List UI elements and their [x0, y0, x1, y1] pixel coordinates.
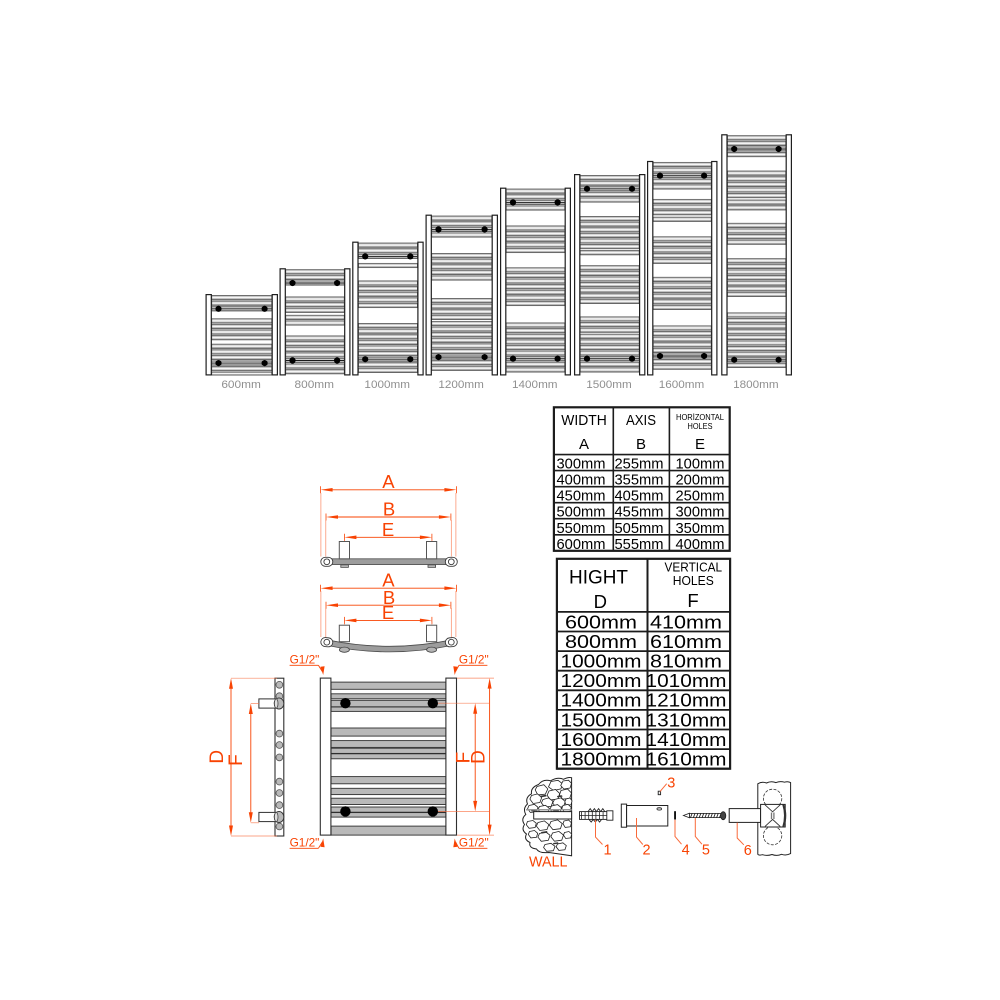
svg-text:B: B [636, 436, 646, 453]
svg-text:G1/2": G1/2" [459, 836, 489, 850]
svg-text:1200mm: 1200mm [438, 379, 484, 391]
svg-text:HORİZONTAL: HORİZONTAL [676, 413, 725, 422]
svg-text:350mm: 350mm [676, 520, 725, 537]
svg-text:600mm: 600mm [221, 379, 261, 391]
svg-text:250mm: 250mm [676, 488, 725, 505]
svg-text:1010mm: 1010mm [646, 671, 727, 691]
svg-text:800mm: 800mm [295, 379, 335, 391]
svg-text:100mm: 100mm [676, 456, 725, 473]
svg-text:800mm: 800mm [565, 632, 637, 652]
svg-text:WALL: WALL [529, 854, 568, 871]
svg-text:355mm: 355mm [615, 472, 664, 489]
svg-text:1610mm: 1610mm [646, 750, 727, 770]
svg-text:D: D [594, 591, 607, 612]
svg-text:1200mm: 1200mm [561, 671, 642, 691]
svg-text:F: F [226, 754, 247, 766]
svg-text:1400mm: 1400mm [561, 691, 642, 711]
svg-text:600mm: 600mm [557, 536, 606, 553]
svg-text:450mm: 450mm [557, 488, 606, 505]
svg-text:410mm: 410mm [650, 612, 722, 632]
svg-text:E: E [695, 436, 705, 453]
svg-text:AXIS: AXIS [626, 412, 656, 429]
svg-text:1800mm: 1800mm [733, 379, 779, 391]
svg-text:300mm: 300mm [676, 504, 725, 521]
svg-text:400mm: 400mm [557, 472, 606, 489]
svg-text:3: 3 [667, 776, 675, 792]
svg-text:1500mm: 1500mm [586, 379, 632, 391]
svg-text:A: A [579, 436, 589, 453]
svg-text:1410mm: 1410mm [646, 730, 727, 750]
svg-text:1310mm: 1310mm [646, 710, 727, 730]
svg-text:255mm: 255mm [615, 456, 664, 473]
svg-text:300mm: 300mm [557, 456, 606, 473]
svg-text:1: 1 [604, 842, 612, 858]
svg-text:G1/2": G1/2" [459, 653, 489, 667]
svg-text:VERTICAL: VERTICAL [665, 561, 723, 575]
svg-text:WIDTH: WIDTH [561, 412, 607, 429]
svg-text:1000mm: 1000mm [561, 652, 642, 672]
svg-text:405mm: 405mm [615, 488, 664, 505]
svg-text:505mm: 505mm [615, 520, 664, 537]
svg-text:E: E [382, 602, 394, 623]
svg-text:400mm: 400mm [676, 536, 725, 553]
svg-text:B: B [383, 499, 395, 520]
svg-text:1210mm: 1210mm [646, 691, 727, 711]
svg-text:1000mm: 1000mm [364, 379, 410, 391]
svg-text:HOLES: HOLES [688, 422, 713, 431]
svg-text:E: E [382, 519, 394, 540]
svg-text:1600mm: 1600mm [659, 379, 705, 391]
svg-text:1600mm: 1600mm [561, 730, 642, 750]
svg-text:A: A [382, 471, 395, 492]
svg-text:G1/2": G1/2" [290, 836, 320, 850]
svg-text:610mm: 610mm [650, 632, 722, 652]
svg-text:5: 5 [702, 842, 710, 858]
svg-text:810mm: 810mm [650, 652, 722, 672]
svg-text:F: F [454, 752, 475, 764]
svg-text:2: 2 [643, 842, 651, 858]
svg-text:4: 4 [682, 842, 690, 858]
svg-text:200mm: 200mm [676, 472, 725, 489]
svg-text:455mm: 455mm [615, 504, 664, 521]
svg-text:555mm: 555mm [615, 536, 664, 553]
svg-text:500mm: 500mm [557, 504, 606, 521]
svg-text:1500mm: 1500mm [561, 710, 642, 730]
svg-text:1800mm: 1800mm [561, 750, 642, 770]
svg-text:600mm: 600mm [565, 612, 637, 632]
svg-text:F: F [687, 590, 698, 611]
svg-text:HIGHT: HIGHT [569, 567, 628, 589]
svg-text:1400mm: 1400mm [512, 379, 558, 391]
svg-text:G1/2": G1/2" [290, 653, 320, 667]
svg-text:HOLES: HOLES [673, 574, 714, 588]
svg-text:550mm: 550mm [557, 520, 606, 537]
svg-text:6: 6 [744, 843, 752, 859]
